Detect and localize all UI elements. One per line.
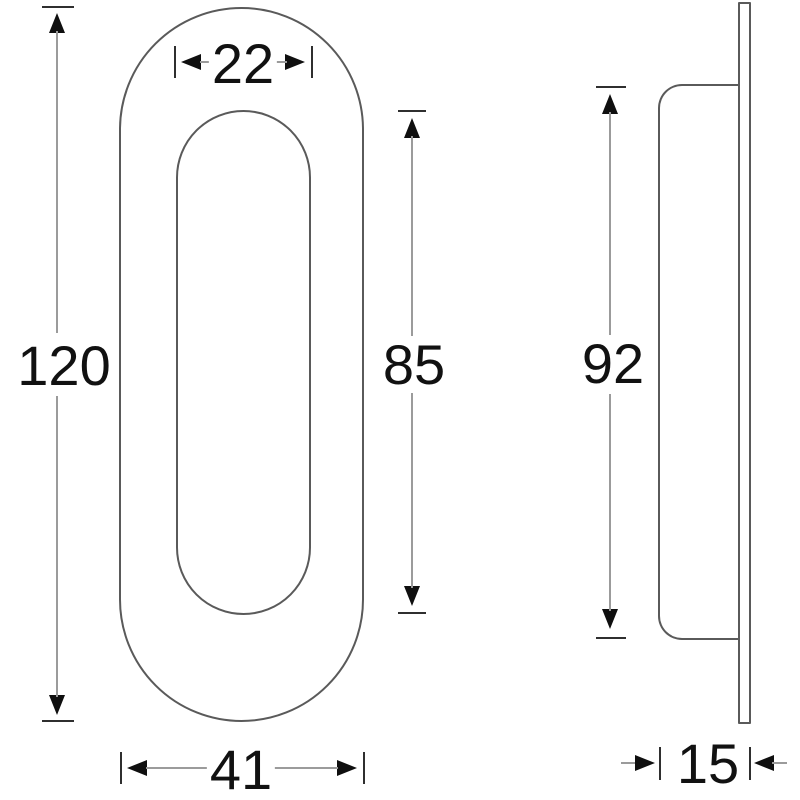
dim-85-top-tick — [398, 110, 426, 112]
dim-15-left-arrow-icon — [635, 755, 655, 771]
dim-22-left-arrow-icon — [181, 54, 201, 70]
dim-22-left-tick — [174, 46, 176, 78]
dim-41-left-arrow-icon — [127, 760, 147, 776]
dim-120-line-upper — [56, 31, 58, 333]
dim-15-line-right — [772, 762, 787, 764]
side-recess-cup-outline — [658, 84, 738, 640]
dim-120-bottom-arrow-icon — [49, 695, 65, 715]
dim-92-top-arrow-icon — [602, 94, 618, 114]
dim-120-bottom-tick — [42, 720, 74, 722]
dim-92-label: 92 — [579, 336, 647, 392]
dim-41-right-arrow-icon — [337, 760, 357, 776]
dim-41-label: 41 — [207, 742, 275, 798]
dim-120-top-tick — [42, 6, 74, 8]
dim-41-line-right — [273, 767, 338, 769]
side-face-plate-outline — [738, 2, 751, 724]
dim-92-top-tick — [596, 86, 626, 88]
dim-120-label: 120 — [14, 338, 113, 394]
dim-92-line-upper — [609, 112, 611, 335]
dim-92-bottom-tick — [596, 637, 626, 639]
dim-92-bottom-arrow-icon — [602, 609, 618, 629]
dim-85-label: 85 — [380, 337, 448, 393]
dim-85-bottom-tick — [398, 612, 426, 614]
dim-15-label: 15 — [674, 736, 742, 792]
dim-85-line-lower — [411, 393, 413, 588]
dim-120-top-arrow-icon — [49, 13, 65, 33]
dim-41-left-tick — [120, 752, 122, 784]
dim-85-line-upper — [411, 136, 413, 336]
dim-15-right-tick — [749, 747, 751, 780]
dim-15-left-tick — [659, 747, 661, 780]
dim-92-line-lower — [609, 394, 611, 611]
front-recess-outline — [176, 110, 311, 615]
dim-22-label: 22 — [209, 36, 277, 92]
technical-drawing-canvas: 120 22 85 41 — [0, 0, 800, 800]
dim-22-right-arrow-icon — [285, 54, 305, 70]
dim-15-right-arrow-icon — [754, 755, 774, 771]
dim-85-bottom-arrow-icon — [404, 586, 420, 606]
dim-120-line-lower — [56, 396, 58, 697]
dim-85-top-arrow-icon — [404, 118, 420, 138]
dim-41-line-left — [146, 767, 208, 769]
dim-41-right-tick — [363, 752, 365, 784]
dim-22-right-tick — [311, 46, 313, 78]
